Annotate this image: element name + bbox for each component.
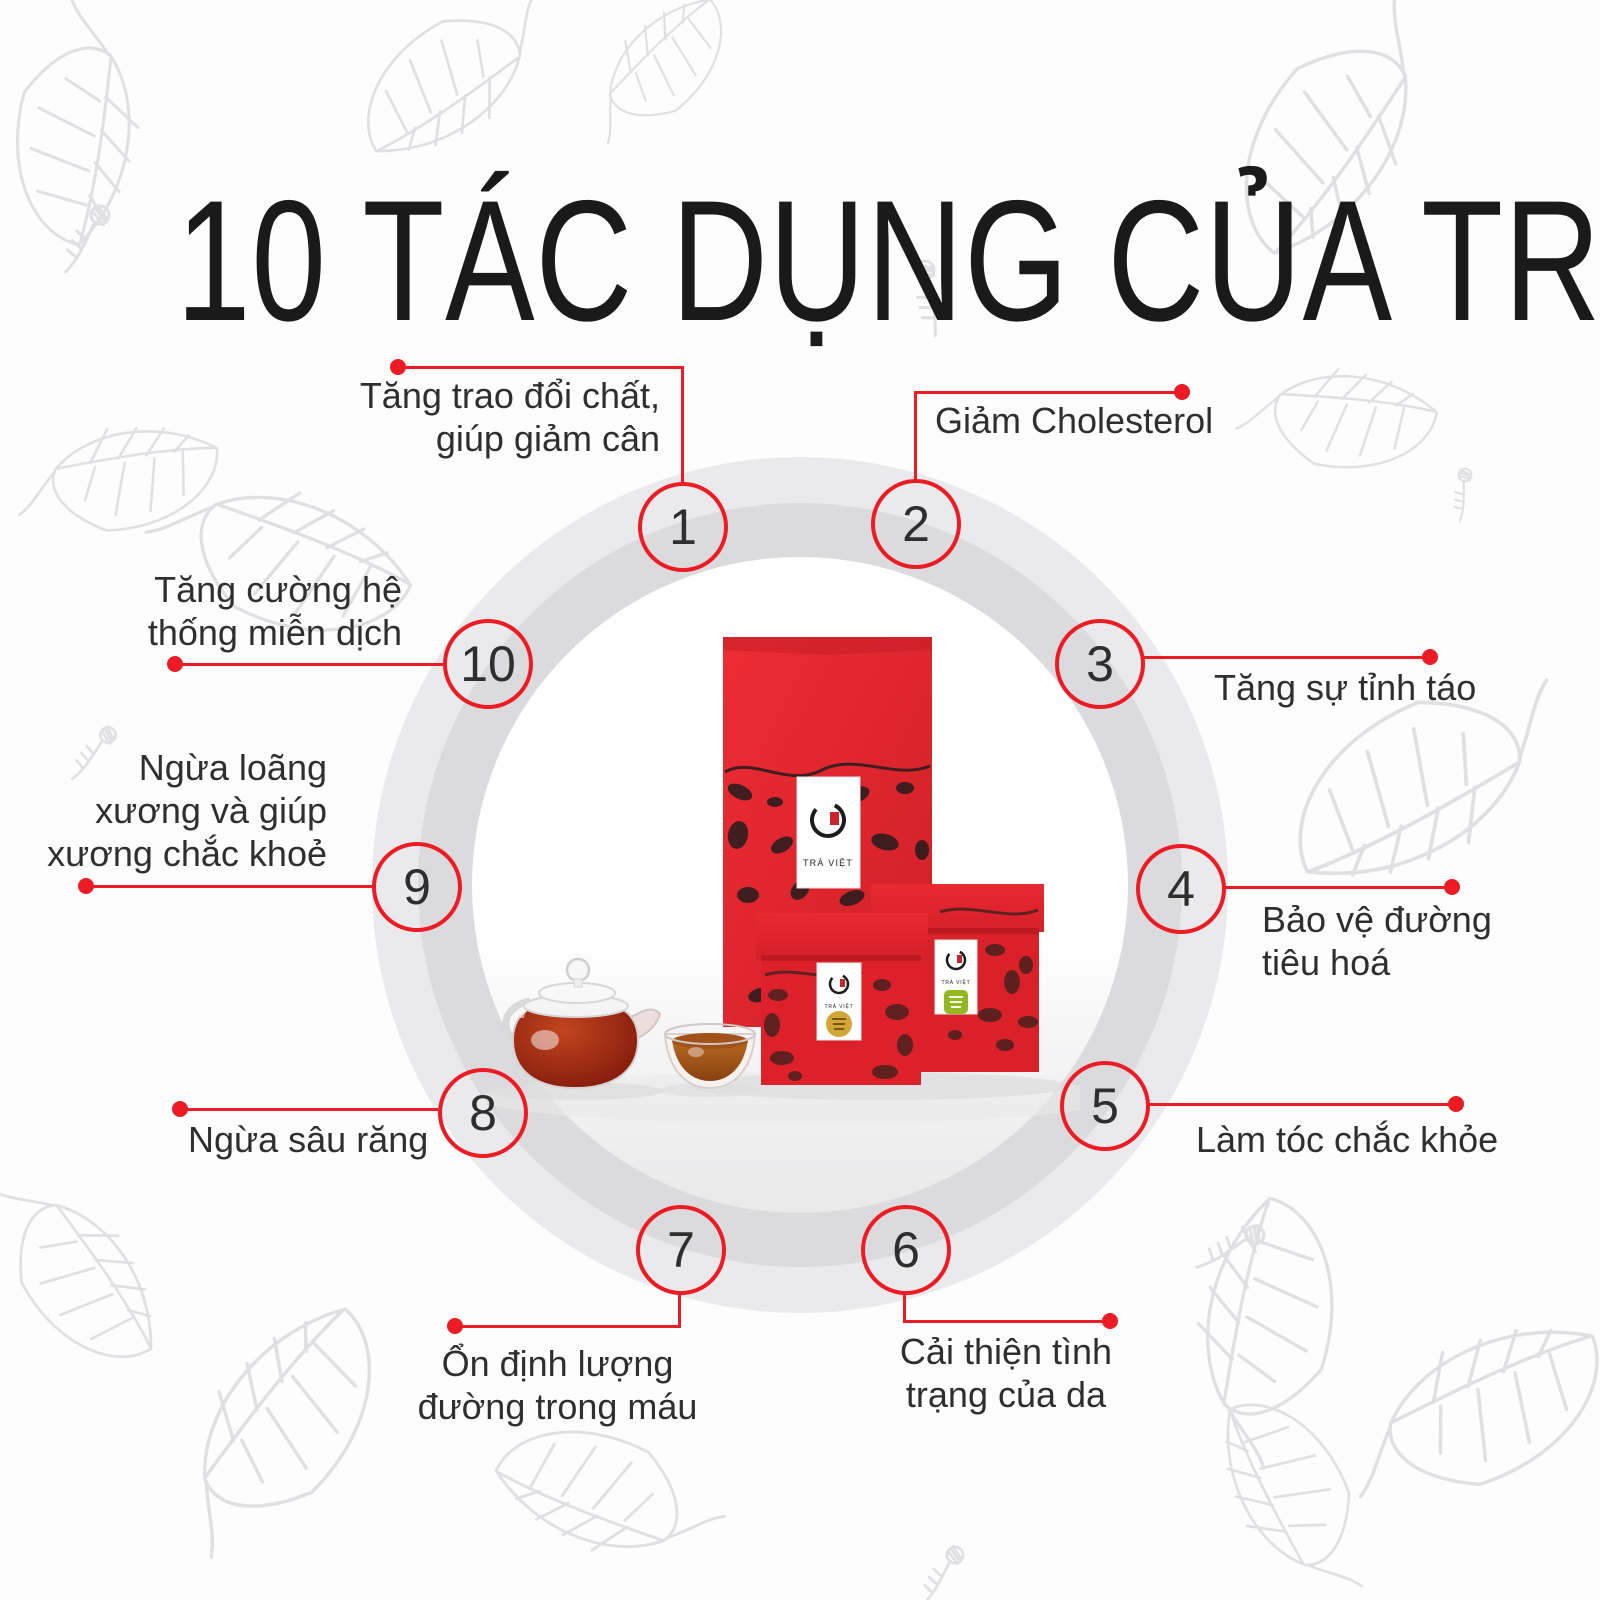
clove-icon — [1446, 467, 1483, 521]
item-3-label: Tăng sự tỉnh táo — [1214, 666, 1476, 709]
brand-label-main: TRÀ VIỆT — [797, 777, 860, 888]
brand-label-left: TRÀ VIỆT — [817, 963, 861, 1040]
item-5-label: Làm tóc chắc khỏe — [1196, 1118, 1498, 1161]
item-8-connector — [180, 1108, 438, 1111]
item-10-label: Tăng cường hệ thống miễn dịch — [102, 568, 402, 654]
item-4-label: Bảo vệ đường tiêu hoá — [1262, 898, 1492, 984]
item-7-connector — [455, 1325, 681, 1328]
leaf-icon — [1341, 1320, 1600, 1501]
item-5-connector — [1148, 1103, 1456, 1106]
item-8-label: Ngừa sâu răng — [188, 1118, 428, 1161]
tea-box-left: TRÀ VIỆT — [756, 913, 928, 1085]
red-seal-icon — [830, 812, 839, 825]
clove-icon — [921, 1542, 965, 1600]
item-10-connector — [175, 663, 443, 666]
item-5-number-circle: 5 — [1060, 1061, 1150, 1151]
brand-text: TRÀ VIỆT — [803, 858, 853, 868]
leaf-icon — [19, 410, 220, 544]
leaf-icon — [1217, 1390, 1365, 1600]
item-2-number-circle: 2 — [871, 479, 961, 569]
item-9-number-circle: 9 — [372, 842, 462, 932]
item-7-number-circle: 7 — [636, 1205, 726, 1295]
red-seal-icon — [957, 955, 962, 963]
item-1-connector — [398, 366, 684, 369]
brand-text: TRÀ VIỆT — [942, 978, 971, 986]
leaf-icon — [343, 0, 567, 163]
item-2-connector — [914, 391, 917, 481]
item-6-label: Cải thiện tình trạng của da — [856, 1330, 1156, 1416]
item-7-connector — [678, 1293, 681, 1328]
brand-label-right: TRÀ VIỆT — [935, 940, 977, 1014]
leaf-icon — [1235, 334, 1442, 499]
teapot — [506, 959, 660, 1088]
leaf-icon — [566, 0, 750, 146]
leaf-icon — [0, 1158, 163, 1382]
item-9-connector — [86, 885, 372, 888]
item-1-connector — [681, 366, 684, 484]
item-3-number-circle: 3 — [1055, 619, 1145, 709]
item-6-connector — [903, 1293, 906, 1323]
infographic-canvas: TRÀ VIỆT TRÀ VIỆT — [0, 0, 1600, 1600]
page-title: 10 TÁC DỤNG CỦA TRÀ — [176, 175, 1424, 347]
item-4-number-circle: 4 — [1136, 844, 1226, 934]
item-1-label: Tăng trao đổi chất, giúp giảm cân — [230, 374, 660, 460]
teapot-knob — [567, 959, 589, 981]
item-10-number-circle: 10 — [443, 619, 533, 709]
item-6-connector — [903, 1320, 1110, 1323]
item-8-number-circle: 8 — [438, 1068, 528, 1158]
red-seal-icon — [840, 979, 845, 987]
item-6-number-circle: 6 — [861, 1205, 951, 1295]
brand-text: TRÀ VIỆT — [825, 1002, 854, 1010]
item-9-label: Ngừa loãng xương và giúp xương chắc khoẻ — [47, 746, 327, 876]
item-7-label: Ổn định lượng đường trong máu — [405, 1342, 710, 1428]
tea-product-photo: TRÀ VIỆT TRÀ VIỆT — [440, 590, 1080, 1150]
item-3-connector — [1143, 656, 1430, 659]
item-2-connector — [914, 391, 1182, 394]
leaf-icon — [129, 1295, 421, 1561]
item-1-number-circle: 1 — [638, 482, 728, 572]
item-4-connector — [1224, 886, 1452, 889]
clove-icon — [1195, 1211, 1267, 1288]
item-2-label: Giảm Cholesterol — [935, 399, 1213, 442]
